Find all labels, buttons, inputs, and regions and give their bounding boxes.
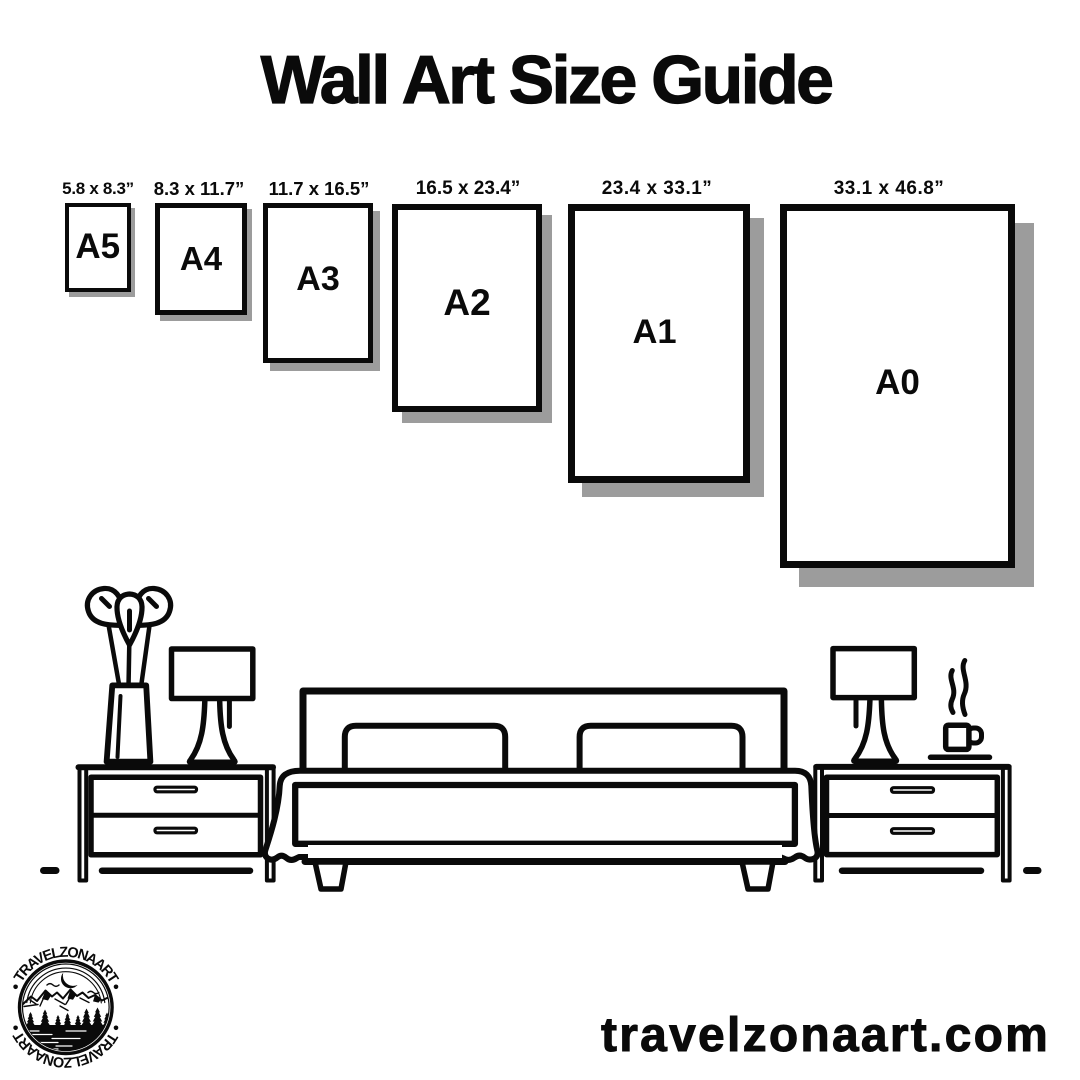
svg-text:TRAVELZONAART: TRAVELZONAART [11,945,121,987]
